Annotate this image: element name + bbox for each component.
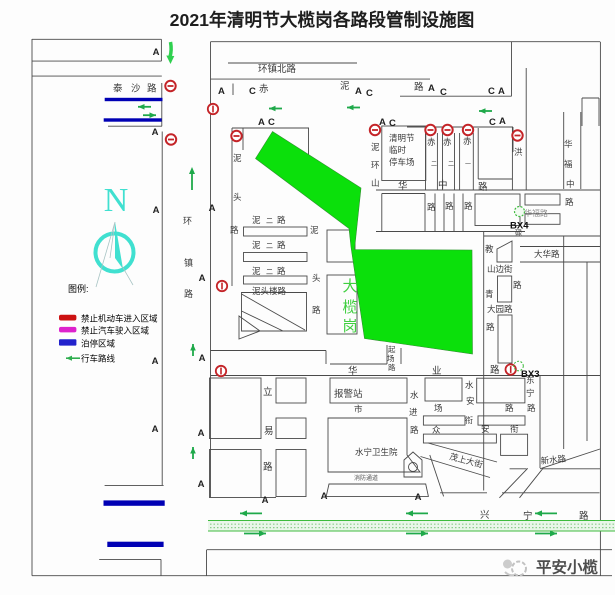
svg-text:停车场: 停车场 (389, 157, 415, 167)
svg-text:场: 场 (387, 354, 395, 363)
svg-text:临时: 临时 (389, 145, 407, 155)
svg-text:路: 路 (184, 288, 193, 299)
svg-text:路: 路 (388, 362, 396, 372)
svg-text:岗: 岗 (342, 318, 357, 335)
svg-text:赤: 赤 (259, 84, 269, 95)
svg-text:A: A (379, 117, 386, 128)
svg-text:路: 路 (527, 403, 536, 413)
svg-text:泥: 泥 (252, 240, 261, 250)
svg-text:安: 安 (466, 396, 475, 406)
svg-text:路: 路 (486, 322, 495, 332)
svg-text:进: 进 (409, 407, 418, 417)
svg-text:福: 福 (564, 159, 573, 169)
svg-text:路: 路 (565, 197, 574, 207)
svg-text:A: A (152, 424, 159, 435)
svg-text:二: 二 (266, 269, 273, 276)
svg-text:头: 头 (312, 273, 321, 283)
svg-text:沙: 沙 (131, 84, 141, 95)
svg-text:泥: 泥 (371, 142, 380, 152)
svg-text:大园路: 大园路 (487, 304, 513, 314)
svg-text:众: 众 (432, 425, 441, 435)
svg-text:兴: 兴 (480, 510, 490, 521)
svg-text:A: A (209, 203, 216, 214)
svg-text:A: A (153, 205, 160, 216)
svg-text:华: 华 (398, 180, 408, 192)
svg-text:A: A (321, 491, 328, 502)
svg-text:C: C (268, 117, 275, 128)
svg-text:华福路: 华福路 (524, 208, 548, 218)
svg-text:宁: 宁 (526, 388, 535, 398)
svg-text:碌: 碌 (515, 228, 522, 237)
svg-text:山: 山 (371, 178, 380, 188)
svg-text:路: 路 (445, 201, 454, 211)
svg-text:起: 起 (388, 345, 396, 354)
svg-text:A: A (415, 492, 422, 503)
svg-text:平安小榄: 平安小榄 (536, 558, 599, 577)
svg-text:路: 路 (505, 403, 514, 413)
svg-text:赤: 赤 (463, 136, 472, 146)
svg-text:宁: 宁 (523, 510, 533, 522)
svg-text:泥: 泥 (252, 215, 261, 225)
svg-text:路: 路 (410, 425, 419, 435)
svg-text:A: A (262, 495, 269, 506)
svg-text:A: A (153, 47, 160, 58)
svg-text:大华路: 大华路 (534, 249, 560, 259)
svg-text:立: 立 (263, 386, 273, 398)
svg-text:泥: 泥 (340, 80, 350, 92)
svg-text:路: 路 (414, 81, 424, 93)
svg-text:泥: 泥 (310, 225, 319, 235)
svg-text:A: A (152, 356, 159, 367)
svg-text:路: 路 (513, 280, 522, 290)
svg-text:A: A (258, 117, 265, 128)
svg-text:N: N (104, 182, 129, 219)
svg-text:C: C (366, 88, 373, 99)
svg-text:A: A (499, 116, 506, 127)
svg-text:路: 路 (263, 461, 273, 473)
svg-text:C: C (389, 118, 396, 129)
svg-text:衔: 衔 (510, 424, 519, 434)
svg-text:泥: 泥 (233, 153, 242, 163)
svg-text:衔: 衔 (465, 415, 473, 425)
svg-text:禁止汽车驶入区域: 禁止汽车驶入区域 (81, 326, 150, 336)
svg-text:中: 中 (438, 179, 448, 191)
svg-text:大: 大 (342, 278, 357, 295)
svg-text:赤: 赤 (443, 137, 452, 147)
svg-text:A: A (198, 479, 205, 490)
svg-text:A: A (198, 428, 205, 439)
svg-text:路: 路 (277, 215, 286, 225)
svg-text:榄: 榄 (342, 299, 357, 316)
svg-text:禁止机动车进入区域: 禁止机动车进入区域 (81, 314, 158, 324)
svg-text:二: 二 (266, 243, 273, 250)
svg-text:报警站: 报警站 (334, 388, 363, 400)
svg-text:一: 一 (465, 162, 471, 168)
svg-text:路: 路 (312, 305, 321, 315)
svg-text:A: A (152, 127, 159, 138)
svg-text:洪: 洪 (514, 147, 523, 157)
svg-text:中: 中 (566, 179, 575, 189)
svg-text:环镇北路: 环镇北路 (258, 63, 297, 75)
svg-text:华: 华 (348, 365, 358, 377)
svg-text:水: 水 (465, 380, 474, 390)
svg-text:A: A (199, 273, 206, 284)
svg-text:二: 二 (266, 218, 273, 225)
svg-text:华: 华 (564, 139, 573, 149)
svg-text:清明节: 清明节 (389, 133, 415, 143)
svg-text:C: C (489, 117, 496, 128)
svg-text:A: A (218, 86, 225, 97)
svg-text:教: 教 (485, 244, 494, 254)
svg-text:场: 场 (434, 403, 443, 413)
svg-text:C: C (249, 86, 256, 97)
svg-text:泊停区域: 泊停区域 (81, 339, 116, 349)
svg-text:赤: 赤 (427, 137, 436, 147)
svg-text:路: 路 (230, 225, 239, 235)
svg-text:头: 头 (233, 192, 242, 202)
svg-text:山边街: 山边街 (487, 264, 513, 274)
svg-text:A: A (428, 83, 435, 94)
svg-text:路: 路 (464, 201, 473, 211)
svg-text:环: 环 (371, 160, 380, 170)
svg-text:路: 路 (147, 83, 157, 95)
svg-text:消防通道: 消防通道 (354, 474, 378, 482)
svg-text:镇: 镇 (184, 257, 193, 268)
svg-text:A: A (355, 86, 362, 97)
svg-text:图例:: 图例: (68, 283, 89, 294)
svg-text:BX3: BX3 (521, 369, 539, 380)
svg-text:业: 业 (432, 366, 442, 377)
svg-text:泥头楼路: 泥头楼路 (252, 286, 287, 296)
svg-text:泥: 泥 (252, 266, 261, 276)
svg-text:二: 二 (431, 162, 437, 168)
svg-text:路: 路 (277, 240, 286, 250)
svg-text:路: 路 (579, 510, 589, 522)
svg-text:安: 安 (481, 424, 490, 434)
svg-text:C: C (440, 87, 447, 98)
svg-text:易: 易 (264, 426, 274, 437)
svg-text:二: 二 (448, 162, 454, 168)
svg-text:2021年清明节大榄岗各路段管制设施图: 2021年清明节大榄岗各路段管制设施图 (170, 9, 475, 30)
svg-text:环: 环 (183, 216, 192, 226)
svg-text:泰: 泰 (113, 83, 123, 95)
svg-text:水: 水 (410, 390, 419, 400)
svg-text:路: 路 (490, 364, 500, 376)
svg-text:A: A (498, 86, 505, 97)
svg-text:A: A (199, 353, 206, 364)
svg-text:行车路线: 行车路线 (81, 354, 116, 364)
svg-text:路: 路 (427, 202, 436, 212)
svg-text:C: C (488, 86, 495, 97)
svg-text:水宁卫生院: 水宁卫生院 (355, 447, 398, 457)
svg-text:路: 路 (277, 266, 286, 276)
svg-text:市: 市 (354, 404, 363, 414)
svg-text:青: 青 (485, 289, 494, 299)
svg-text:路: 路 (478, 181, 488, 193)
